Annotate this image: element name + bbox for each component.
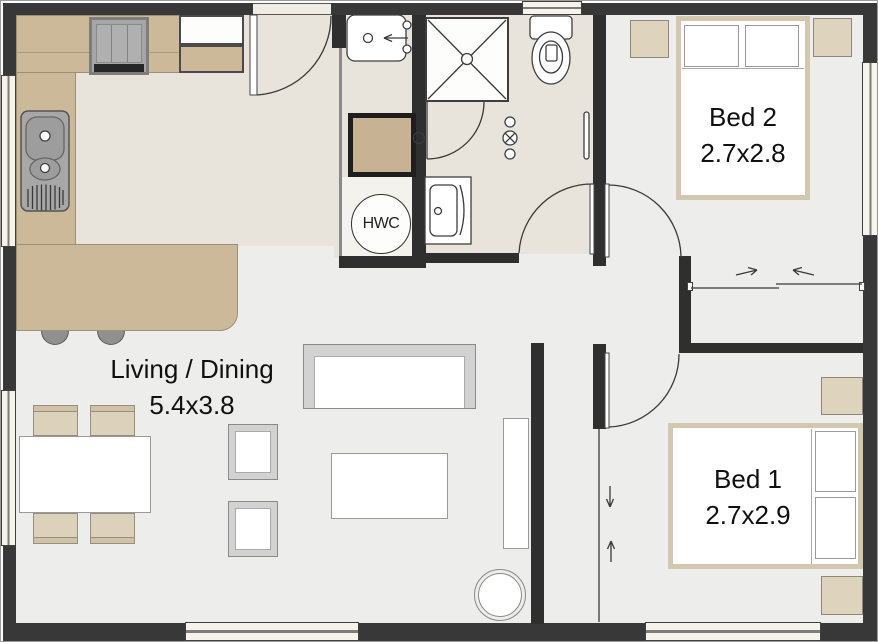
bed2-pillow-2: [745, 25, 799, 67]
coffee-table: [331, 453, 448, 519]
kitchen-cabinet: [179, 45, 244, 73]
wall-bottom-b: [358, 623, 647, 641]
armchair-1: [228, 424, 278, 480]
sofa: [303, 344, 476, 409]
bed1-bedside-table-2: [821, 576, 863, 615]
wall-laundry-partition: [339, 48, 342, 256]
bed2-wardrobe-cap-left: [687, 282, 693, 291]
wall-laundry-bottom: [339, 256, 415, 268]
bed2-size: 2.7x2.8: [673, 135, 813, 171]
floor-lamp: [474, 569, 526, 621]
wall-bed2-bed1-divider: [679, 343, 863, 353]
window-bed1-bottom: [645, 622, 821, 641]
wall-left-a: [3, 3, 16, 77]
armchair-2-seat: [235, 508, 271, 550]
window-kitchen-left: [1, 75, 16, 247]
sofa-seat: [314, 356, 465, 408]
wall-right-b: [863, 235, 877, 641]
wall-bottom-a: [3, 623, 187, 641]
wall-right-a: [863, 3, 877, 64]
linen-cabinet: [348, 113, 416, 177]
cooktop-base: [94, 64, 144, 72]
cooktop-surface: [96, 24, 142, 63]
hwc-label: HWC: [363, 215, 400, 233]
bed1-name: Bed 1: [653, 461, 843, 497]
dining-chair-1: [33, 405, 78, 436]
bed2-pillow-1: [684, 25, 739, 67]
wall-living-bed1: [531, 343, 544, 624]
wall-bathroom-bottom: [425, 253, 519, 263]
window-bed2-right: [862, 62, 878, 236]
wall-bed1-stub: [593, 344, 606, 429]
fridge: [179, 15, 244, 45]
window-living-bottom: [185, 622, 359, 641]
bed1-size: 2.7x2.9: [653, 497, 843, 533]
kitchen-island-bench: [16, 244, 238, 331]
wall-top-c: [581, 3, 863, 15]
floor-lamp-inner: [478, 573, 522, 617]
window-living-left: [1, 390, 16, 546]
bed2-sheet-line: [682, 68, 804, 69]
dining-chair-3: [33, 513, 78, 544]
floor-plan: HWC: [0, 0, 878, 642]
wall-laundry-stub: [332, 15, 346, 48]
armchair-1-seat: [235, 431, 271, 473]
wall-left-b: [3, 246, 16, 391]
wall-top-b: [331, 3, 524, 15]
window-bathroom-top: [522, 1, 582, 15]
bed2-wardrobe-cap-right: [859, 282, 865, 291]
wall-bed2-wardrobe-left: [679, 256, 691, 353]
bed2-label: Bed 2 2.7x2.8: [673, 99, 813, 171]
living-dining-label: Living / Dining 5.4x3.8: [85, 351, 299, 423]
dining-chair-4: [90, 513, 135, 544]
bed1-bedside-table-1: [821, 377, 863, 415]
tv-cabinet: [503, 418, 529, 549]
dining-table: [19, 436, 151, 513]
shower: [425, 17, 509, 102]
living-dining-size: 5.4x3.8: [85, 387, 299, 423]
living-dining-name: Living / Dining: [85, 351, 299, 387]
bed1-label: Bed 1 2.7x2.9: [653, 461, 843, 533]
bed2-bedside-table-1: [630, 20, 669, 58]
bed2-name: Bed 2: [673, 99, 813, 135]
bed2-bedside-table-2: [813, 18, 852, 57]
wall-bathroom-right: [593, 15, 606, 266]
armchair-2: [228, 501, 278, 557]
entry-door-opening: [253, 3, 331, 15]
wall-top-a: [3, 3, 253, 15]
hwc-cylinder: HWC: [351, 194, 411, 254]
wall-bottom-c: [820, 623, 877, 641]
cooktop: [89, 17, 149, 75]
